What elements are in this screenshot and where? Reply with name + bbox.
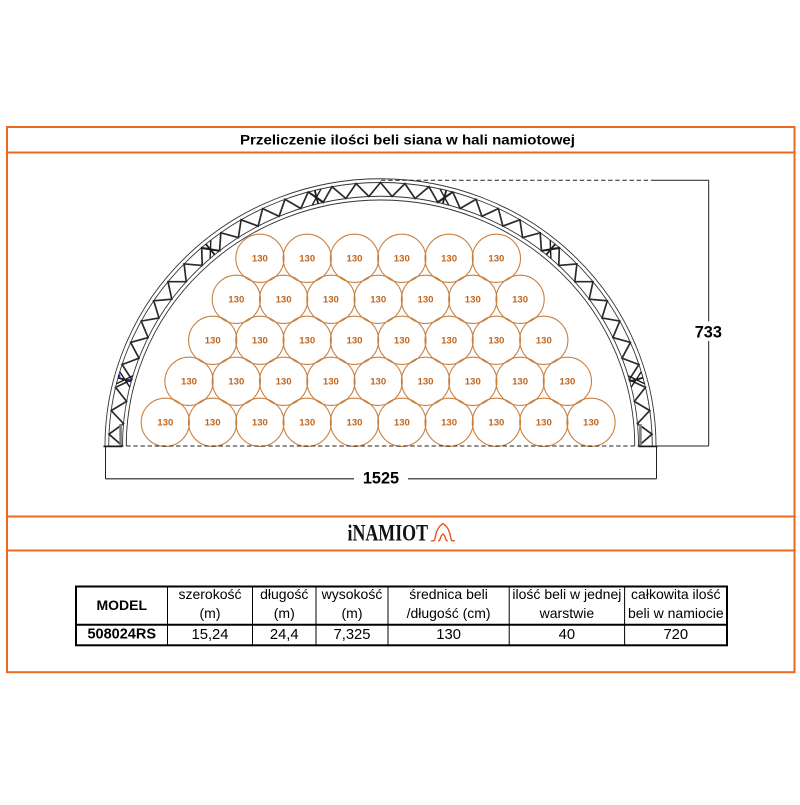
svg-text:130: 130	[536, 418, 552, 429]
svg-text:/długość (cm): /długość (cm)	[407, 605, 491, 621]
svg-text:1525: 1525	[363, 470, 399, 488]
svg-text:130: 130	[441, 254, 457, 265]
svg-text:130: 130	[417, 377, 433, 388]
svg-text:130: 130	[323, 377, 339, 388]
svg-text:130: 130	[181, 377, 197, 388]
svg-text:130: 130	[370, 295, 386, 306]
svg-text:warstwie: warstwie	[539, 605, 595, 621]
svg-text:ilość beli w jednej: ilość beli w jednej	[512, 586, 621, 602]
svg-text:130: 130	[488, 418, 504, 429]
svg-text:130: 130	[228, 295, 244, 306]
svg-text:130: 130	[205, 336, 221, 347]
svg-text:(m): (m)	[274, 605, 295, 621]
svg-text:733: 733	[695, 323, 722, 341]
svg-text:130: 130	[536, 336, 552, 347]
svg-text:130: 130	[205, 418, 221, 429]
svg-text:130: 130	[276, 295, 292, 306]
svg-text:MODEL: MODEL	[96, 597, 147, 613]
svg-text:(m): (m)	[342, 605, 363, 621]
svg-text:Przeliczenie ilości beli siana: Przeliczenie ilości beli siana w hali na…	[240, 133, 575, 148]
svg-text:130: 130	[346, 418, 362, 429]
svg-text:130: 130	[559, 377, 575, 388]
svg-text:7,325: 7,325	[333, 627, 370, 643]
svg-text:długość: długość	[260, 586, 308, 602]
svg-text:130: 130	[512, 295, 528, 306]
svg-text:130: 130	[276, 377, 292, 388]
svg-text:130: 130	[394, 254, 410, 265]
svg-text:15,24: 15,24	[191, 627, 228, 643]
svg-text:130: 130	[417, 295, 433, 306]
svg-text:130: 130	[465, 295, 481, 306]
svg-text:(m): (m)	[200, 605, 221, 621]
svg-text:130: 130	[323, 295, 339, 306]
svg-text:130: 130	[228, 377, 244, 388]
svg-text:130: 130	[394, 336, 410, 347]
svg-text:130: 130	[465, 377, 481, 388]
svg-text:130: 130	[488, 254, 504, 265]
svg-text:130: 130	[346, 336, 362, 347]
svg-text:130: 130	[252, 254, 268, 265]
svg-text:130: 130	[346, 254, 362, 265]
svg-text:508024RS: 508024RS	[87, 627, 156, 643]
svg-text:130: 130	[441, 336, 457, 347]
svg-text:średnica beli: średnica beli	[409, 586, 488, 602]
svg-text:szerokość: szerokość	[178, 586, 241, 602]
svg-text:130: 130	[299, 336, 315, 347]
svg-text:130: 130	[488, 336, 504, 347]
svg-text:130: 130	[370, 377, 386, 388]
svg-text:130: 130	[299, 418, 315, 429]
svg-text:całkowita ilość: całkowita ilość	[631, 586, 720, 602]
svg-text:130: 130	[252, 418, 268, 429]
svg-text:beli w namiocie: beli w namiocie	[628, 605, 724, 621]
svg-text:130: 130	[394, 418, 410, 429]
svg-text:130: 130	[583, 418, 599, 429]
svg-text:130: 130	[436, 627, 461, 643]
svg-text:130: 130	[441, 418, 457, 429]
svg-text:130: 130	[299, 254, 315, 265]
svg-text:wysokość: wysokość	[321, 586, 383, 602]
svg-text:130: 130	[157, 418, 173, 429]
svg-text:130: 130	[252, 336, 268, 347]
svg-text:iNAMIOT: iNAMIOT	[348, 521, 429, 547]
svg-text:720: 720	[663, 627, 688, 643]
svg-text:40: 40	[559, 627, 575, 643]
svg-text:130: 130	[512, 377, 528, 388]
svg-text:24,4: 24,4	[270, 627, 299, 643]
